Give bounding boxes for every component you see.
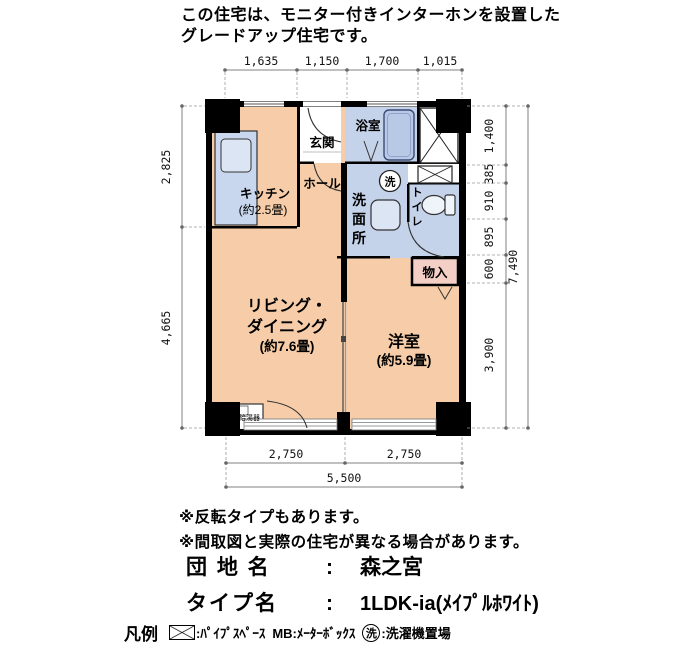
pillar-top-right: [436, 99, 471, 133]
storage-label: 物入: [422, 265, 448, 280]
kitchen-living-wall: [211, 226, 297, 229]
kitchen-sink: [221, 139, 251, 172]
dim-top-2: 1,150: [305, 54, 340, 68]
dim-right-1: 1,400: [482, 119, 496, 154]
toilet-bowl: [422, 196, 446, 215]
bedroom-label: 洋室: [388, 332, 420, 351]
entrance-floor: [300, 107, 341, 163]
laundry-place: 洗: [380, 171, 401, 192]
legend-laundry: 洗 :洗濯機置場: [362, 623, 450, 642]
wall-stub-bottom-mid: [337, 412, 350, 435]
kitchen-size-label: (約2.5畳): [239, 202, 288, 217]
dim-right-2: 385: [482, 164, 496, 185]
legend-wash-label: :洗濯機置場: [381, 623, 450, 642]
laundry-circle-icon: 洗: [362, 624, 380, 642]
wall-right: [459, 101, 466, 435]
pipe-space-icon: [169, 625, 195, 640]
legend-meter-box: MB:ﾒｰﾀｰﾎﾞｯｸｽ: [272, 623, 355, 642]
washroom-toilet-wall: [407, 184, 410, 222]
dim-right-5: 600: [482, 259, 496, 280]
dim-ext-top: [225, 72, 462, 98]
wall-left: [206, 101, 212, 435]
kitchen-right-wall: [297, 107, 300, 227]
washbasin: [371, 200, 400, 230]
laundry-symbol-label: 洗: [385, 175, 396, 189]
dim-top-3: 1,700: [365, 54, 400, 68]
dim-right-6: 3,900: [482, 338, 496, 373]
legend-title: 凡例: [124, 620, 158, 645]
estate-name-colon: :: [326, 556, 360, 580]
legend: 凡例 :ﾊﾟｲﾌﾟｽﾍﾟｰｽ MB:ﾒｰﾀｰﾎﾞｯｸｽ 洗 :洗濯機置場: [124, 620, 451, 645]
bedroom-window: [352, 419, 436, 430]
pillar-top-left: [205, 99, 240, 133]
living-label-line1: リビング・: [247, 296, 327, 315]
water-heater-label: 給湯器: [239, 413, 260, 422]
entrance-label: 玄関: [309, 135, 334, 150]
living-label-line2: ダイニング: [247, 317, 327, 336]
dim-bottom-1: 2,750: [269, 447, 304, 461]
pillar-bottom-left: [205, 402, 240, 436]
bathtub: [384, 110, 414, 160]
living-bedroom-wall: [341, 163, 347, 302]
estate-name-value: 森之宮: [360, 551, 423, 581]
entrance-hall-wall: [300, 162, 314, 165]
dim-top-1: 1,635: [244, 54, 279, 68]
pillar-bottom-right: [436, 402, 471, 436]
toilet-tank: [445, 195, 455, 215]
kitchen-label: キッチン: [240, 187, 290, 201]
dim-ext-left: [184, 106, 205, 428]
partition-tick: [341, 336, 346, 342]
estate-name-label: 団 地 名: [186, 551, 326, 581]
bath-ps-wall: [417, 107, 420, 163]
dim-right-4: 895: [482, 227, 496, 248]
type-name-label: タイプ名: [186, 587, 326, 617]
dim-bottom-2: 2,750: [387, 447, 422, 461]
note-line1: ※反転タイプもあります。: [179, 505, 529, 530]
type-name-row: タイプ名 : 1LDK-ia(ﾒｲﾌﾟﾙﾎﾜｲﾄ): [186, 587, 539, 617]
living-size-label: (約7.6畳): [260, 338, 315, 354]
legend-mb-label: MB:ﾒｰﾀｰﾎﾞｯｸｽ: [272, 623, 355, 642]
bedroom-size-label: (約5.9畳): [377, 352, 432, 368]
legend-pipe-label: :ﾊﾟｲﾌﾟｽﾍﾟｰｽ: [196, 623, 265, 642]
dim-left-2: 4,665: [159, 311, 173, 346]
dim-left-1: 2,825: [159, 150, 173, 185]
estate-name-row: 団 地 名 : 森之宮: [186, 551, 423, 581]
notes: ※反転タイプもあります。 ※間取図と実際の住宅が異なる場合があります。: [179, 505, 529, 555]
dim-top-4: 1,015: [423, 54, 458, 68]
washroom-label: 洗面所: [352, 192, 366, 246]
entrance-door-gap: [303, 102, 341, 107]
type-name-colon: :: [326, 592, 360, 616]
bath-label: 浴室: [355, 118, 381, 133]
legend-pipe-space: :ﾊﾟｲﾌﾟｽﾍﾟｰｽ: [169, 623, 265, 642]
toilet-label: トイレ: [412, 186, 423, 228]
type-name-value: 1LDK-ia(ﾒｲﾌﾟﾙﾎﾜｲﾄ): [360, 587, 539, 616]
hall-label: ホール: [303, 177, 341, 191]
dim-right-total: 7,490: [506, 250, 520, 285]
dim-bottom-total: 5,500: [327, 471, 362, 485]
dim-right-3: 910: [482, 191, 496, 212]
